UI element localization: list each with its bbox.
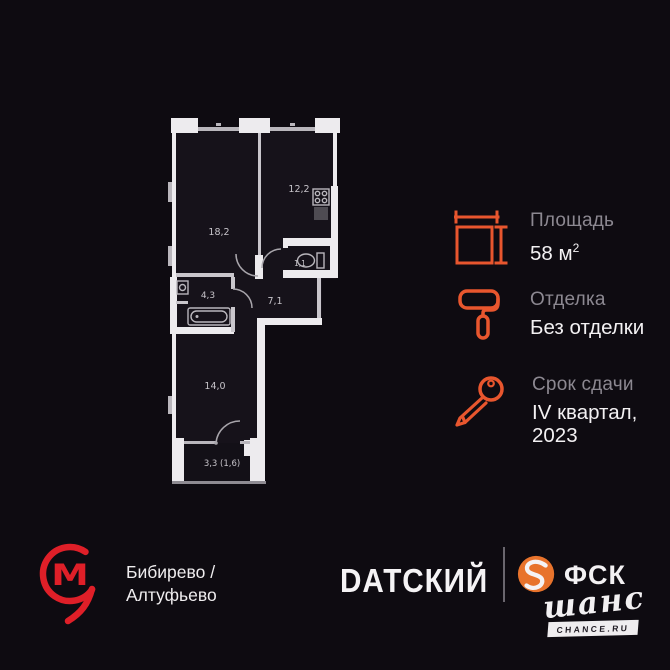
metro-icon: М bbox=[33, 532, 109, 628]
room-label-wc: 1,1 bbox=[294, 259, 306, 268]
floor-plan: 18,2 12,2 1,1 4,3 7,1 14,0 3,3 (1,6) bbox=[160, 100, 355, 495]
listing-card: 18,2 12,2 1,1 4,3 7,1 14,0 3,3 (1,6) Пло… bbox=[0, 0, 670, 670]
finishing-label: Отделка bbox=[530, 289, 644, 311]
deadline-line1: IV квартал, bbox=[532, 401, 637, 424]
metro-letter: М bbox=[51, 558, 89, 592]
station-line1: Бибирево / bbox=[126, 561, 217, 584]
detail-deadline: Срок сдачи IV квартал, 2023 bbox=[453, 374, 637, 447]
room-label-living: 18,2 bbox=[208, 227, 229, 238]
area-icon bbox=[454, 210, 508, 268]
area-value-text: 58 м bbox=[530, 242, 573, 265]
room-label-hall: 7,1 bbox=[267, 296, 282, 307]
area-label: Площадь bbox=[530, 210, 614, 232]
station-line2: Алтуфьево bbox=[126, 584, 217, 607]
room-label-kitchen: 12,2 bbox=[288, 184, 309, 195]
key-icon bbox=[453, 374, 508, 429]
area-value-sup: 2 bbox=[573, 241, 580, 255]
developer-site: CHANCE.RU bbox=[556, 623, 630, 635]
paint-roller-icon bbox=[458, 289, 504, 353]
metro-stations: Бибирево / Алтуфьево bbox=[126, 561, 217, 607]
room-label-balcony: 3,3 (1,6) bbox=[204, 459, 240, 469]
developer-logo: ФСК шанс CHANCE.RU bbox=[516, 552, 656, 647]
finishing-value: Без отделки bbox=[530, 316, 644, 339]
deadline-line2: 2023 bbox=[532, 424, 637, 447]
detail-finishing: Отделка Без отделки bbox=[458, 289, 644, 353]
brand-separator bbox=[503, 547, 505, 602]
deadline-label: Срок сдачи bbox=[532, 374, 637, 396]
developer-site-band: CHANCE.RU bbox=[547, 620, 638, 637]
room-label-bathroom: 4,3 bbox=[201, 291, 215, 301]
room-label-bedroom: 14,0 bbox=[204, 381, 225, 392]
project-brand: DАТСКИЙ bbox=[340, 562, 488, 600]
detail-area: Площадь 58 м2 bbox=[454, 210, 614, 268]
area-value: 58 м2 bbox=[530, 237, 614, 265]
apartment-interior bbox=[174, 131, 336, 481]
